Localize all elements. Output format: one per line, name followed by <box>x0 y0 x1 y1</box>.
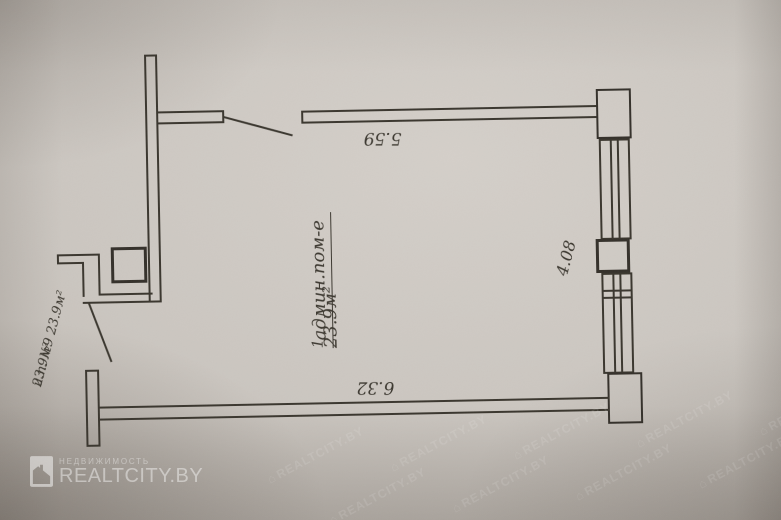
duct-shaft-box <box>111 247 148 284</box>
closet-wall-lower-bot <box>83 300 162 304</box>
brand-text: НЕДВИЖИМОСТЬ REALTCITY.BY <box>59 456 203 487</box>
pier-right-middle <box>596 238 631 273</box>
realtcity-house-icon <box>30 456 53 487</box>
closet-wall-right-line <box>98 254 101 296</box>
closet-wall-left-line <box>82 262 85 297</box>
unit-label: и.п. №9 23.9м² 23.9м² <box>30 257 64 385</box>
door-swing-line <box>224 116 293 136</box>
realtcity-watermark: НЕДВИЖИМОСТЬ REALTCITY.BY <box>30 456 203 487</box>
room-label: 1 админ.пом-е 23.9м² <box>306 177 389 349</box>
door-jamb-wall <box>156 110 224 124</box>
unit-label-line2: 23.9м² <box>30 337 58 388</box>
wall-bottom <box>99 397 610 421</box>
closet-wall-lower-top <box>99 293 153 296</box>
window-upper-glazing <box>610 141 621 238</box>
column-top-right <box>596 88 632 139</box>
watermark-brand: REALTCITY.BY <box>59 466 203 487</box>
dimension-top: 5.59 <box>343 128 423 148</box>
closet-wall-inner-line <box>57 262 84 265</box>
closet-wall-end-cap <box>57 254 59 264</box>
window-lower-sill <box>604 289 632 299</box>
closet-wall-top-line <box>57 254 100 257</box>
room-area: 23.9м² <box>319 286 341 349</box>
wall-stub-bottom-left <box>85 370 100 447</box>
column-bottom-right <box>607 372 643 424</box>
dimension-right: 4.08 <box>547 217 586 299</box>
wall-top <box>301 105 598 124</box>
dimension-bottom: 6.32 <box>335 377 415 397</box>
label-leader-line <box>88 303 112 362</box>
floorplan-photo: 5.59 6.32 4.08 1 админ.пом-е 23.9м² и.п.… <box>0 0 781 520</box>
